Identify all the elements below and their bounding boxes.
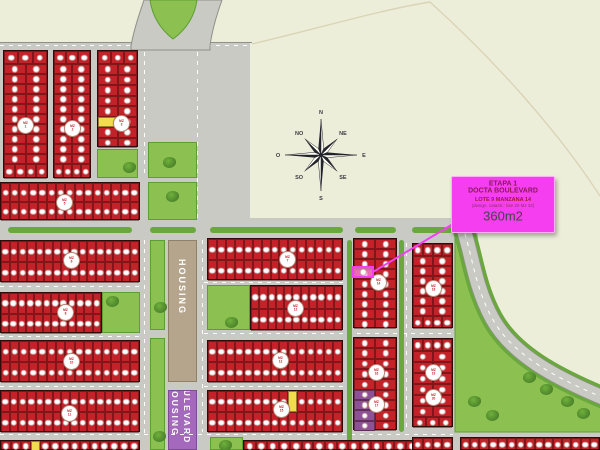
lot[interactable] (413, 438, 423, 450)
lot[interactable] (26, 104, 48, 114)
lot[interactable] (26, 144, 48, 154)
lot[interactable] (100, 441, 110, 450)
lot[interactable] (130, 362, 139, 383)
lot[interactable] (29, 202, 38, 221)
lot[interactable] (72, 74, 90, 84)
lot[interactable] (87, 391, 96, 412)
lot[interactable] (98, 138, 118, 149)
lot[interactable] (47, 341, 56, 362)
lot[interactable] (507, 438, 516, 450)
lot[interactable] (253, 412, 262, 433)
lot[interactable] (38, 183, 47, 202)
lot[interactable] (79, 241, 88, 262)
lot[interactable] (44, 241, 53, 262)
lot[interactable] (1, 362, 10, 383)
lot[interactable] (29, 362, 38, 383)
lot[interactable] (38, 362, 47, 383)
lot[interactable] (36, 391, 45, 412)
lot[interactable] (433, 266, 453, 276)
lot[interactable] (54, 94, 72, 104)
lot[interactable] (208, 239, 217, 260)
lot[interactable] (105, 412, 114, 433)
lot[interactable] (375, 239, 396, 249)
lot[interactable] (93, 293, 101, 314)
lot[interactable] (36, 262, 45, 283)
lot[interactable] (102, 183, 111, 202)
lot[interactable] (98, 106, 118, 117)
lot[interactable] (44, 391, 53, 412)
lot[interactable] (253, 260, 262, 281)
lot[interactable] (87, 262, 96, 283)
lot[interactable] (111, 51, 124, 64)
lot[interactable] (111, 341, 120, 362)
lot[interactable] (288, 412, 297, 433)
lot[interactable] (354, 289, 375, 299)
lot[interactable] (10, 391, 19, 412)
lot[interactable] (121, 202, 130, 221)
lot[interactable] (113, 262, 122, 283)
lot[interactable] (84, 293, 92, 314)
lot[interactable] (433, 316, 443, 329)
lot[interactable] (271, 260, 280, 281)
lot[interactable] (18, 391, 27, 412)
lot[interactable] (19, 202, 28, 221)
lot[interactable] (354, 379, 375, 389)
lot[interactable] (72, 64, 90, 74)
lot[interactable] (9, 293, 17, 314)
lot[interactable] (217, 239, 226, 260)
lot[interactable] (4, 104, 26, 114)
lot[interactable] (26, 314, 34, 335)
lot[interactable] (122, 241, 131, 262)
lot[interactable] (18, 412, 27, 433)
lot[interactable] (433, 306, 453, 316)
lot[interactable] (18, 241, 27, 262)
lot[interactable] (87, 412, 96, 433)
lot[interactable] (113, 391, 122, 412)
lot[interactable] (315, 341, 324, 362)
lot[interactable] (36, 241, 45, 262)
lot[interactable] (84, 341, 93, 362)
lot[interactable] (10, 412, 19, 433)
lot[interactable] (63, 164, 72, 179)
lot[interactable] (33, 51, 47, 64)
lot[interactable] (4, 84, 26, 94)
lot[interactable] (426, 417, 439, 428)
lot[interactable] (43, 314, 51, 335)
lot[interactable] (262, 362, 271, 383)
lot[interactable] (102, 362, 111, 383)
lot[interactable] (19, 183, 28, 202)
lot[interactable] (306, 239, 315, 260)
lot[interactable] (84, 183, 93, 202)
lot[interactable] (1, 412, 10, 433)
lot[interactable] (433, 244, 443, 256)
lot[interactable] (54, 84, 72, 94)
lot[interactable] (19, 362, 28, 383)
lot[interactable] (251, 286, 259, 309)
lot[interactable] (38, 341, 47, 362)
lot[interactable] (75, 183, 84, 202)
lot[interactable] (26, 94, 48, 104)
lot[interactable] (4, 134, 26, 144)
lot[interactable] (333, 412, 342, 433)
lot[interactable] (129, 441, 139, 450)
lot[interactable] (121, 362, 130, 383)
lot[interactable] (235, 391, 244, 412)
lot[interactable] (105, 262, 114, 283)
lot[interactable] (54, 154, 72, 164)
lot[interactable] (53, 262, 62, 283)
lot[interactable] (315, 412, 324, 433)
lot[interactable] (333, 239, 342, 260)
lot[interactable] (315, 239, 324, 260)
lot[interactable] (118, 75, 138, 86)
lot[interactable] (253, 341, 262, 362)
lot[interactable] (26, 164, 37, 179)
lot[interactable] (18, 314, 26, 335)
lot[interactable] (423, 316, 433, 329)
lot[interactable] (4, 154, 26, 164)
lot[interactable] (1, 341, 10, 362)
lot[interactable] (72, 104, 90, 114)
lot[interactable] (118, 96, 138, 107)
lot[interactable] (10, 241, 19, 262)
lot[interactable] (27, 262, 36, 283)
lot[interactable] (4, 51, 18, 64)
lot[interactable] (259, 286, 267, 309)
lot[interactable] (1, 314, 9, 335)
lot[interactable] (244, 260, 253, 281)
lot[interactable] (297, 260, 306, 281)
lot[interactable] (217, 362, 226, 383)
lot[interactable] (34, 293, 42, 314)
lot[interactable] (413, 266, 433, 276)
lot[interactable] (208, 412, 217, 433)
lot[interactable] (297, 362, 306, 383)
lot[interactable] (413, 244, 423, 256)
lot[interactable] (253, 239, 262, 260)
lot[interactable] (324, 239, 333, 260)
lot[interactable] (268, 309, 276, 332)
lot[interactable] (208, 341, 217, 362)
lot[interactable] (423, 244, 433, 256)
lot[interactable] (124, 51, 137, 64)
lot[interactable] (244, 391, 253, 412)
lot[interactable] (217, 341, 226, 362)
lot[interactable] (1, 202, 10, 221)
lot[interactable] (1, 293, 9, 314)
lot[interactable] (375, 319, 396, 329)
lot[interactable] (98, 51, 111, 64)
lot[interactable] (75, 202, 84, 221)
lot[interactable] (325, 286, 333, 309)
lot[interactable] (290, 441, 302, 450)
lot[interactable] (121, 341, 130, 362)
lot[interactable] (375, 348, 396, 358)
lot[interactable] (267, 441, 279, 450)
lot[interactable] (413, 351, 433, 362)
lot[interactable] (38, 202, 47, 221)
lot[interactable] (271, 239, 280, 260)
lot[interactable] (109, 441, 119, 450)
lot[interactable] (217, 391, 226, 412)
lot[interactable] (93, 314, 101, 335)
lot[interactable] (27, 391, 36, 412)
lot[interactable] (268, 286, 276, 309)
lot[interactable] (208, 260, 217, 281)
lot[interactable] (1, 183, 10, 202)
lot[interactable] (235, 362, 244, 383)
lot[interactable] (315, 391, 324, 412)
lot[interactable] (253, 391, 262, 412)
lot[interactable] (98, 75, 118, 86)
lot[interactable] (253, 362, 262, 383)
lot[interactable] (317, 286, 325, 309)
lot[interactable] (479, 438, 488, 450)
lot[interactable] (235, 260, 244, 281)
lot[interactable] (354, 338, 375, 348)
lot[interactable] (439, 417, 452, 428)
lot[interactable] (4, 144, 26, 154)
lot[interactable] (333, 341, 342, 362)
lot[interactable] (262, 391, 271, 412)
lot[interactable] (423, 438, 433, 450)
lot[interactable] (60, 441, 70, 450)
lot[interactable] (375, 379, 396, 389)
lot[interactable] (354, 421, 375, 431)
lot[interactable] (306, 412, 315, 433)
lot[interactable] (1, 241, 10, 262)
lot[interactable] (375, 299, 396, 309)
lot[interactable] (44, 412, 53, 433)
lot[interactable] (553, 438, 562, 450)
lot[interactable] (259, 309, 267, 332)
lot[interactable] (262, 260, 271, 281)
lot[interactable] (383, 441, 395, 450)
lot[interactable] (118, 64, 138, 75)
lot-info-popup[interactable]: ETAPA 1 DOCTA BOULEVARD LOTE 9 MANZANA 1… (451, 176, 555, 233)
lot[interactable] (90, 441, 100, 450)
lot[interactable] (1, 262, 10, 283)
lot[interactable] (244, 341, 253, 362)
lot[interactable] (354, 239, 375, 249)
lot[interactable] (84, 314, 92, 335)
lot[interactable] (27, 412, 36, 433)
lot[interactable] (130, 202, 139, 221)
lot[interactable] (96, 262, 105, 283)
lot[interactable] (53, 241, 62, 262)
lot[interactable] (10, 362, 19, 383)
lot[interactable] (72, 164, 81, 179)
lot[interactable] (413, 296, 433, 306)
lot[interactable] (442, 244, 452, 256)
lot[interactable] (93, 341, 102, 362)
lot[interactable] (118, 138, 138, 149)
lot[interactable] (235, 341, 244, 362)
lot[interactable] (34, 314, 42, 335)
lot[interactable] (235, 412, 244, 433)
lot[interactable] (324, 260, 333, 281)
lot[interactable] (226, 239, 235, 260)
lot[interactable] (66, 51, 78, 64)
lot[interactable] (354, 309, 375, 319)
lot[interactable] (121, 183, 130, 202)
lot[interactable] (1, 441, 11, 450)
lot[interactable] (470, 438, 479, 450)
lot[interactable] (79, 262, 88, 283)
lot[interactable] (19, 341, 28, 362)
lot[interactable] (324, 412, 333, 433)
lot[interactable] (96, 241, 105, 262)
lot[interactable] (375, 289, 396, 299)
lot[interactable] (93, 362, 102, 383)
lot[interactable] (81, 164, 90, 179)
lot[interactable] (333, 391, 342, 412)
lot[interactable] (489, 438, 498, 450)
lot[interactable] (53, 412, 62, 433)
lot[interactable] (26, 74, 48, 84)
lot[interactable] (102, 202, 111, 221)
lot[interactable] (375, 338, 396, 348)
lot[interactable] (313, 441, 325, 450)
lot[interactable] (413, 417, 426, 428)
lot[interactable] (337, 441, 349, 450)
lot[interactable] (27, 241, 36, 262)
lot[interactable] (54, 104, 72, 114)
lot[interactable] (130, 183, 139, 202)
lot[interactable] (54, 164, 63, 179)
lot[interactable] (226, 362, 235, 383)
lot[interactable] (333, 260, 342, 281)
lot[interactable] (26, 84, 48, 94)
lot[interactable] (72, 84, 90, 94)
lot[interactable] (1, 391, 10, 412)
lot[interactable] (525, 438, 534, 450)
lot[interactable] (262, 341, 271, 362)
lot[interactable] (130, 391, 139, 412)
lot[interactable] (111, 202, 120, 221)
lot[interactable] (50, 441, 60, 450)
lot[interactable] (226, 391, 235, 412)
lot[interactable] (324, 341, 333, 362)
lot[interactable] (433, 339, 443, 351)
lot[interactable] (334, 286, 342, 309)
lot[interactable] (98, 64, 118, 75)
lot[interactable] (80, 441, 90, 450)
lot[interactable] (244, 441, 256, 450)
lot[interactable] (93, 183, 102, 202)
lot[interactable] (54, 144, 72, 154)
lot[interactable] (413, 316, 423, 329)
lot[interactable] (4, 164, 15, 179)
lot[interactable] (29, 341, 38, 362)
lot[interactable] (105, 391, 114, 412)
lot[interactable] (334, 309, 342, 332)
lot[interactable] (10, 262, 19, 283)
lot[interactable] (226, 412, 235, 433)
lot[interactable] (315, 362, 324, 383)
lot[interactable] (130, 262, 139, 283)
lot[interactable] (498, 438, 507, 450)
lot[interactable] (315, 260, 324, 281)
lot[interactable] (325, 441, 337, 450)
lot[interactable] (130, 341, 139, 362)
lot[interactable] (21, 441, 31, 450)
lot[interactable] (297, 341, 306, 362)
lot[interactable] (302, 441, 314, 450)
lot[interactable] (4, 64, 26, 74)
lot[interactable] (297, 239, 306, 260)
lot[interactable] (76, 314, 84, 335)
lot[interactable] (226, 260, 235, 281)
lot[interactable] (87, 241, 96, 262)
lot[interactable] (26, 134, 48, 144)
lot[interactable] (235, 239, 244, 260)
lot[interactable] (10, 183, 19, 202)
lot[interactable] (113, 412, 122, 433)
lot[interactable] (10, 341, 19, 362)
lot[interactable] (18, 262, 27, 283)
lot[interactable] (461, 438, 470, 450)
lot[interactable] (84, 362, 93, 383)
lot[interactable] (442, 438, 452, 450)
lot[interactable] (375, 249, 396, 259)
lot[interactable] (433, 351, 453, 362)
lot[interactable] (122, 262, 131, 283)
lot[interactable] (375, 259, 396, 269)
lot[interactable] (70, 441, 80, 450)
lot[interactable] (226, 341, 235, 362)
lot[interactable] (53, 391, 62, 412)
lot[interactable] (102, 341, 111, 362)
lot[interactable] (279, 441, 291, 450)
lot[interactable] (360, 441, 372, 450)
lot[interactable] (98, 96, 118, 107)
lot[interactable] (306, 341, 315, 362)
lot[interactable] (36, 412, 45, 433)
lot[interactable] (256, 441, 268, 450)
lot[interactable] (433, 296, 453, 306)
lot[interactable] (562, 438, 571, 450)
lot[interactable] (10, 202, 19, 221)
lot[interactable] (375, 421, 396, 431)
lot[interactable] (276, 286, 284, 309)
lot[interactable] (18, 51, 32, 64)
lot[interactable] (297, 412, 306, 433)
lot[interactable] (371, 441, 383, 450)
lot[interactable] (54, 51, 66, 64)
lot[interactable] (18, 293, 26, 314)
lot[interactable] (72, 144, 90, 154)
lot[interactable] (130, 412, 139, 433)
lot[interactable] (348, 441, 360, 450)
lot[interactable] (354, 348, 375, 358)
lot[interactable] (297, 391, 306, 412)
lot[interactable] (354, 299, 375, 309)
lot[interactable] (122, 391, 131, 412)
lot[interactable] (78, 51, 90, 64)
lot[interactable] (54, 74, 72, 84)
lot[interactable] (442, 316, 452, 329)
lot[interactable] (72, 94, 90, 104)
lot[interactable] (324, 362, 333, 383)
lot[interactable] (262, 239, 271, 260)
lot[interactable] (244, 412, 253, 433)
lot[interactable] (208, 391, 217, 412)
lot[interactable] (79, 391, 88, 412)
lot[interactable] (11, 441, 21, 450)
